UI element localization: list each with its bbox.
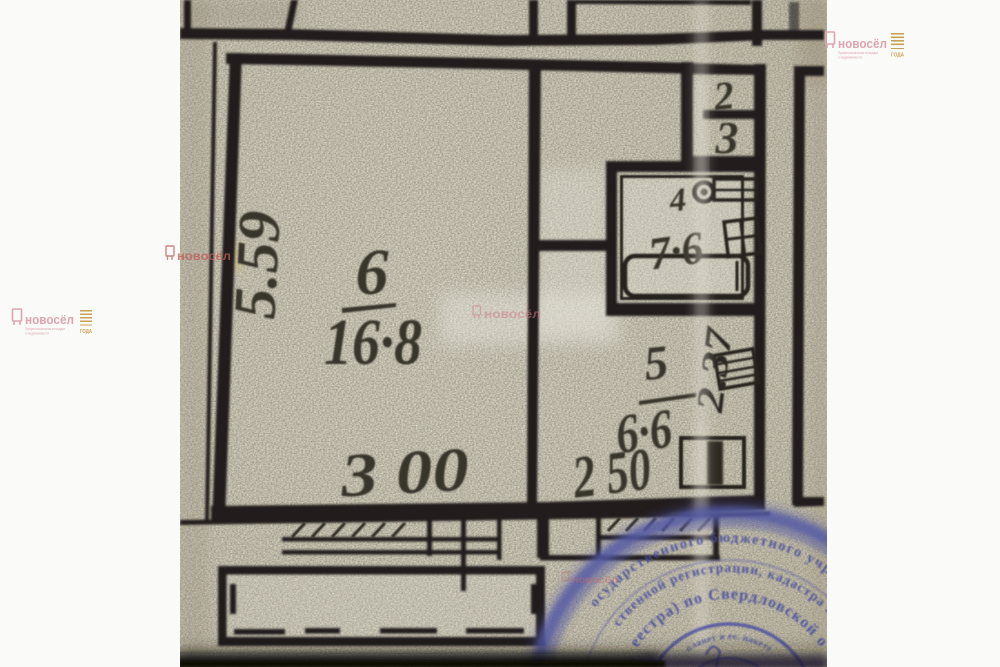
svg-text:5.59: 5.59 [221, 209, 293, 320]
svg-text:3 00: 3 00 [338, 436, 471, 511]
svg-text:ГОДА: ГОДА [891, 53, 905, 59]
svg-text:16·8: 16·8 [324, 306, 422, 379]
svg-text:3: 3 [715, 112, 739, 163]
svg-text:новосёл: новосёл [177, 249, 231, 263]
svg-text:6: 6 [356, 236, 389, 309]
svg-text:ГОДА: ГОДА [80, 329, 93, 335]
svg-text:о недвижимости: о недвижимости [838, 56, 862, 60]
svg-text:новосёл: новосёл [25, 313, 74, 327]
svg-text:о недвижимости: о недвижимости [25, 332, 49, 336]
svg-text:новосёл: новосёл [838, 37, 887, 51]
svg-text:Профессиональная площадка: Профессиональная площадка [838, 51, 878, 55]
svg-text:новосёл: новосёл [484, 309, 541, 321]
svg-text:новосёл: новосёл [572, 574, 618, 586]
svg-text:2 50: 2 50 [568, 436, 654, 511]
svg-text:Профессиональная площадка: Профессиональная площадка [25, 327, 65, 331]
